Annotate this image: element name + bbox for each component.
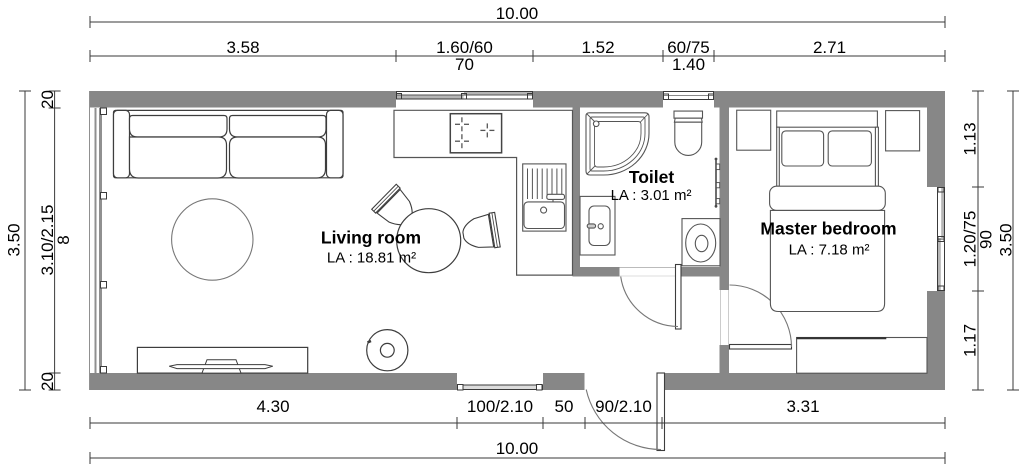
svg-text:3.50: 3.50 bbox=[997, 223, 1016, 256]
svg-text:LA : 7.18 m²: LA : 7.18 m² bbox=[789, 241, 870, 258]
svg-text:1.17: 1.17 bbox=[961, 324, 980, 357]
svg-text:3.58: 3.58 bbox=[226, 38, 259, 57]
svg-text:50: 50 bbox=[555, 397, 574, 416]
svg-text:100/2.10: 100/2.10 bbox=[467, 397, 533, 416]
svg-text:70: 70 bbox=[455, 55, 474, 74]
svg-text:LA : 3.01 m²: LA : 3.01 m² bbox=[611, 187, 692, 204]
svg-text:1.52: 1.52 bbox=[581, 38, 614, 57]
svg-text:2.71: 2.71 bbox=[813, 38, 846, 57]
svg-text:10.00: 10.00 bbox=[496, 4, 539, 23]
svg-text:4.30: 4.30 bbox=[256, 397, 289, 416]
svg-text:3.31: 3.31 bbox=[786, 397, 819, 416]
svg-text:20: 20 bbox=[38, 372, 57, 391]
svg-text:Toilet: Toilet bbox=[629, 167, 675, 187]
svg-text:Master bedroom: Master bedroom bbox=[760, 218, 896, 238]
svg-text:20: 20 bbox=[38, 90, 57, 109]
svg-text:10.00: 10.00 bbox=[496, 439, 539, 458]
svg-text:8: 8 bbox=[54, 235, 73, 244]
svg-text:Living room: Living room bbox=[321, 228, 421, 248]
svg-text:90: 90 bbox=[977, 230, 996, 249]
svg-text:90/2.10: 90/2.10 bbox=[595, 397, 652, 416]
svg-text:1.13: 1.13 bbox=[961, 122, 980, 155]
svg-text:3.50: 3.50 bbox=[5, 223, 24, 256]
svg-text:1.40: 1.40 bbox=[672, 55, 705, 74]
svg-text:LA : 18.81 m²: LA : 18.81 m² bbox=[327, 250, 416, 267]
